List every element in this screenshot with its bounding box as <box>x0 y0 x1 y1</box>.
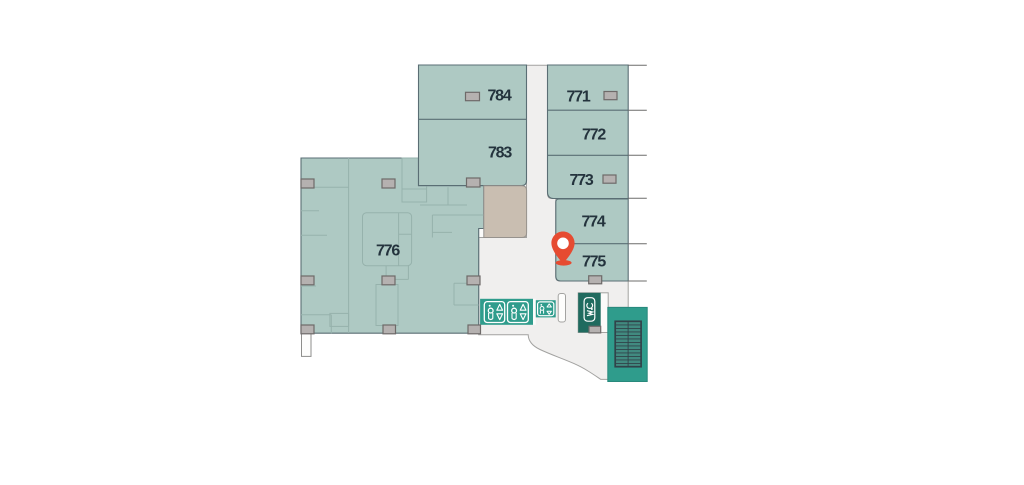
svg-text:775: 775 <box>582 254 606 271</box>
svg-text:783: 783 <box>488 144 512 161</box>
svg-text:771: 771 <box>566 89 590 106</box>
svg-text:774: 774 <box>581 213 605 230</box>
svg-text:784: 784 <box>487 87 511 104</box>
svg-text:772: 772 <box>582 126 606 143</box>
svg-text:773: 773 <box>569 172 593 189</box>
svg-text:776: 776 <box>376 242 400 259</box>
